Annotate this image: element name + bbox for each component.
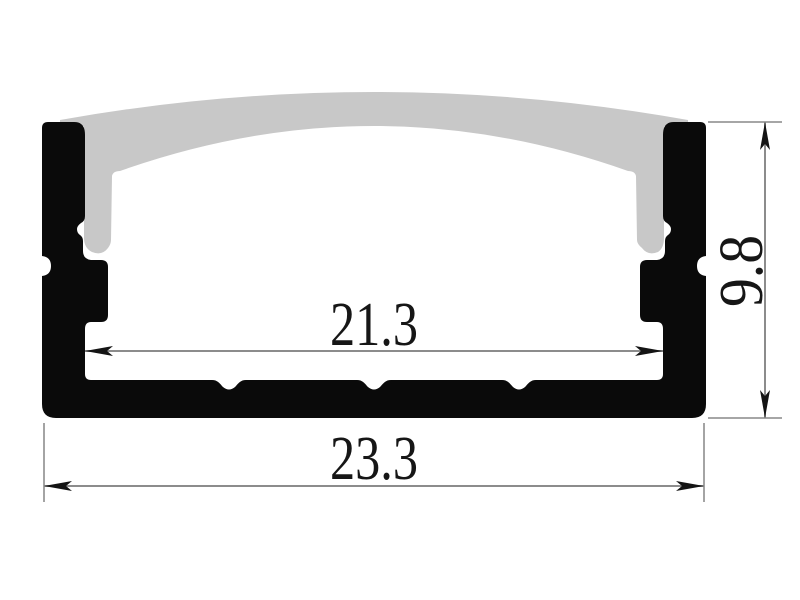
diffuser-cover-shape <box>60 92 688 253</box>
aluminum-profile-shape <box>42 122 706 418</box>
dimension-overall-width: 23.3 <box>44 423 704 502</box>
dimension-inner-width: 21.3 <box>85 291 663 359</box>
dimension-height: 9.8 <box>708 122 782 418</box>
aluminum-profile-body <box>42 122 706 418</box>
technical-drawing-canvas: 21.3 23.3 9.8 <box>0 0 800 600</box>
inner-width-label: 21.3 <box>330 291 418 359</box>
overall-width-label: 23.3 <box>330 425 418 493</box>
profile-cross-section-drawing: 21.3 23.3 9.8 <box>0 0 800 600</box>
height-label: 9.8 <box>708 235 776 307</box>
diffuser-cover <box>60 92 688 253</box>
